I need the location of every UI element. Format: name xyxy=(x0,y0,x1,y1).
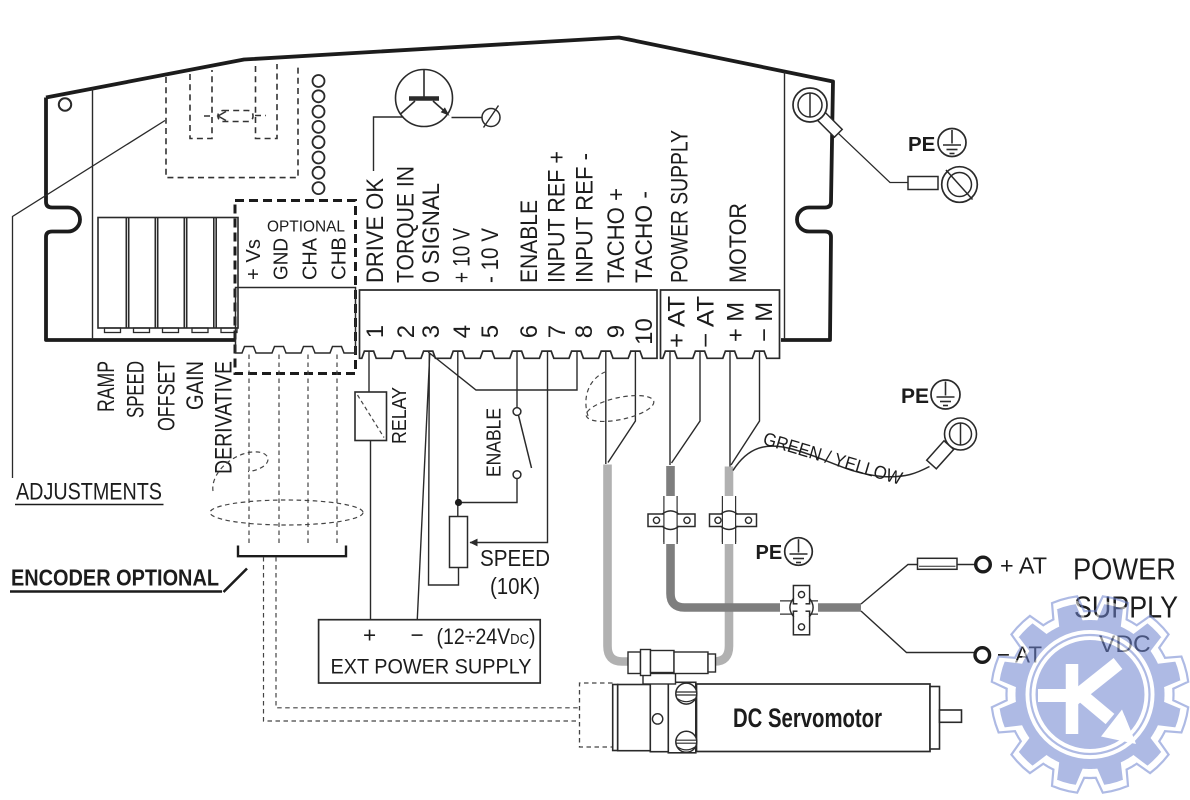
svg-text:EXT POWER SUPPLY: EXT POWER SUPPLY xyxy=(331,655,532,679)
svg-text:OPTIONAL: OPTIONAL xyxy=(267,219,345,236)
svg-text:+: + xyxy=(363,623,376,648)
svg-text:PE: PE xyxy=(901,385,929,408)
svg-text:1: 1 xyxy=(362,325,389,338)
svg-text:7: 7 xyxy=(544,325,571,338)
svg-text:+ 10 V: + 10 V xyxy=(449,228,476,283)
svg-text:4: 4 xyxy=(449,325,476,338)
svg-text:+ Vs: + Vs xyxy=(243,239,265,280)
svg-text:ENCODER OPTIONAL: ENCODER OPTIONAL xyxy=(11,565,219,591)
svg-text:(10K): (10K) xyxy=(490,573,540,599)
svg-text:INPUT REF +: INPUT REF + xyxy=(544,151,571,283)
svg-text:GAIN: GAIN xyxy=(182,361,209,410)
svg-text:DRIVE OK: DRIVE OK xyxy=(362,178,389,283)
svg-text:DERIVATIVE: DERIVATIVE xyxy=(211,361,238,474)
svg-text:PE: PE xyxy=(908,133,935,156)
svg-text:SPEED: SPEED xyxy=(123,361,150,418)
svg-text:− AT: − AT xyxy=(693,296,720,348)
svg-text:CHA: CHA xyxy=(300,237,322,280)
svg-text:TACHO +: TACHO + xyxy=(603,188,630,283)
svg-text:- 10 V: - 10 V xyxy=(477,228,504,283)
svg-text:+ AT: + AT xyxy=(664,296,691,348)
svg-text:ENABLE: ENABLE xyxy=(483,408,506,477)
svg-text:−: − xyxy=(411,623,424,648)
svg-text:TORQUE IN: TORQUE IN xyxy=(393,166,420,283)
svg-text:SPEED: SPEED xyxy=(480,545,550,571)
svg-text:− M: − M xyxy=(751,302,778,342)
svg-text:MOTOR: MOTOR xyxy=(725,203,752,283)
svg-text:3: 3 xyxy=(418,325,445,338)
svg-text:+ M: + M xyxy=(723,302,750,342)
svg-text:ENABLE: ENABLE xyxy=(516,200,543,283)
svg-text:POWER SUPPLY: POWER SUPPLY xyxy=(667,130,694,283)
svg-text:8: 8 xyxy=(571,325,598,338)
svg-text:0 SIGNAL: 0 SIGNAL xyxy=(418,183,445,283)
svg-text:CHB: CHB xyxy=(329,237,351,280)
svg-text:RAMP: RAMP xyxy=(93,361,120,412)
svg-text:5: 5 xyxy=(477,325,504,338)
svg-text:ADJUSTMENTS: ADJUSTMENTS xyxy=(16,479,162,506)
svg-text:+ AT: + AT xyxy=(1000,553,1047,579)
svg-text:INPUT REF -: INPUT REF - xyxy=(572,153,599,283)
svg-text:9: 9 xyxy=(603,325,630,338)
svg-text:2: 2 xyxy=(393,325,420,338)
svg-text:POWER: POWER xyxy=(1073,552,1176,587)
svg-text:DC Servomotor: DC Servomotor xyxy=(733,703,882,733)
svg-text:OFFSET: OFFSET xyxy=(154,361,181,431)
svg-text:RELAY: RELAY xyxy=(388,387,411,444)
svg-text:GND: GND xyxy=(271,238,293,280)
svg-text:PE: PE xyxy=(756,542,783,564)
svg-text:10: 10 xyxy=(631,318,658,345)
svg-text:TACHO -: TACHO - xyxy=(631,191,658,283)
svg-text:6: 6 xyxy=(516,325,543,338)
